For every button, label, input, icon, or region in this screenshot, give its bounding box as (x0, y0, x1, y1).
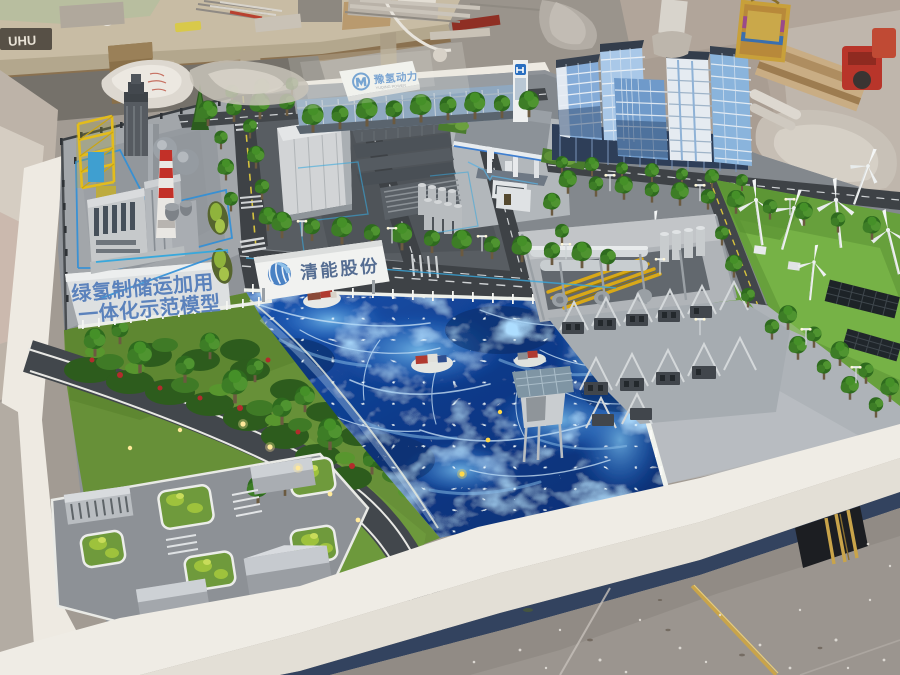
svg-text:UHU: UHU (8, 32, 37, 48)
